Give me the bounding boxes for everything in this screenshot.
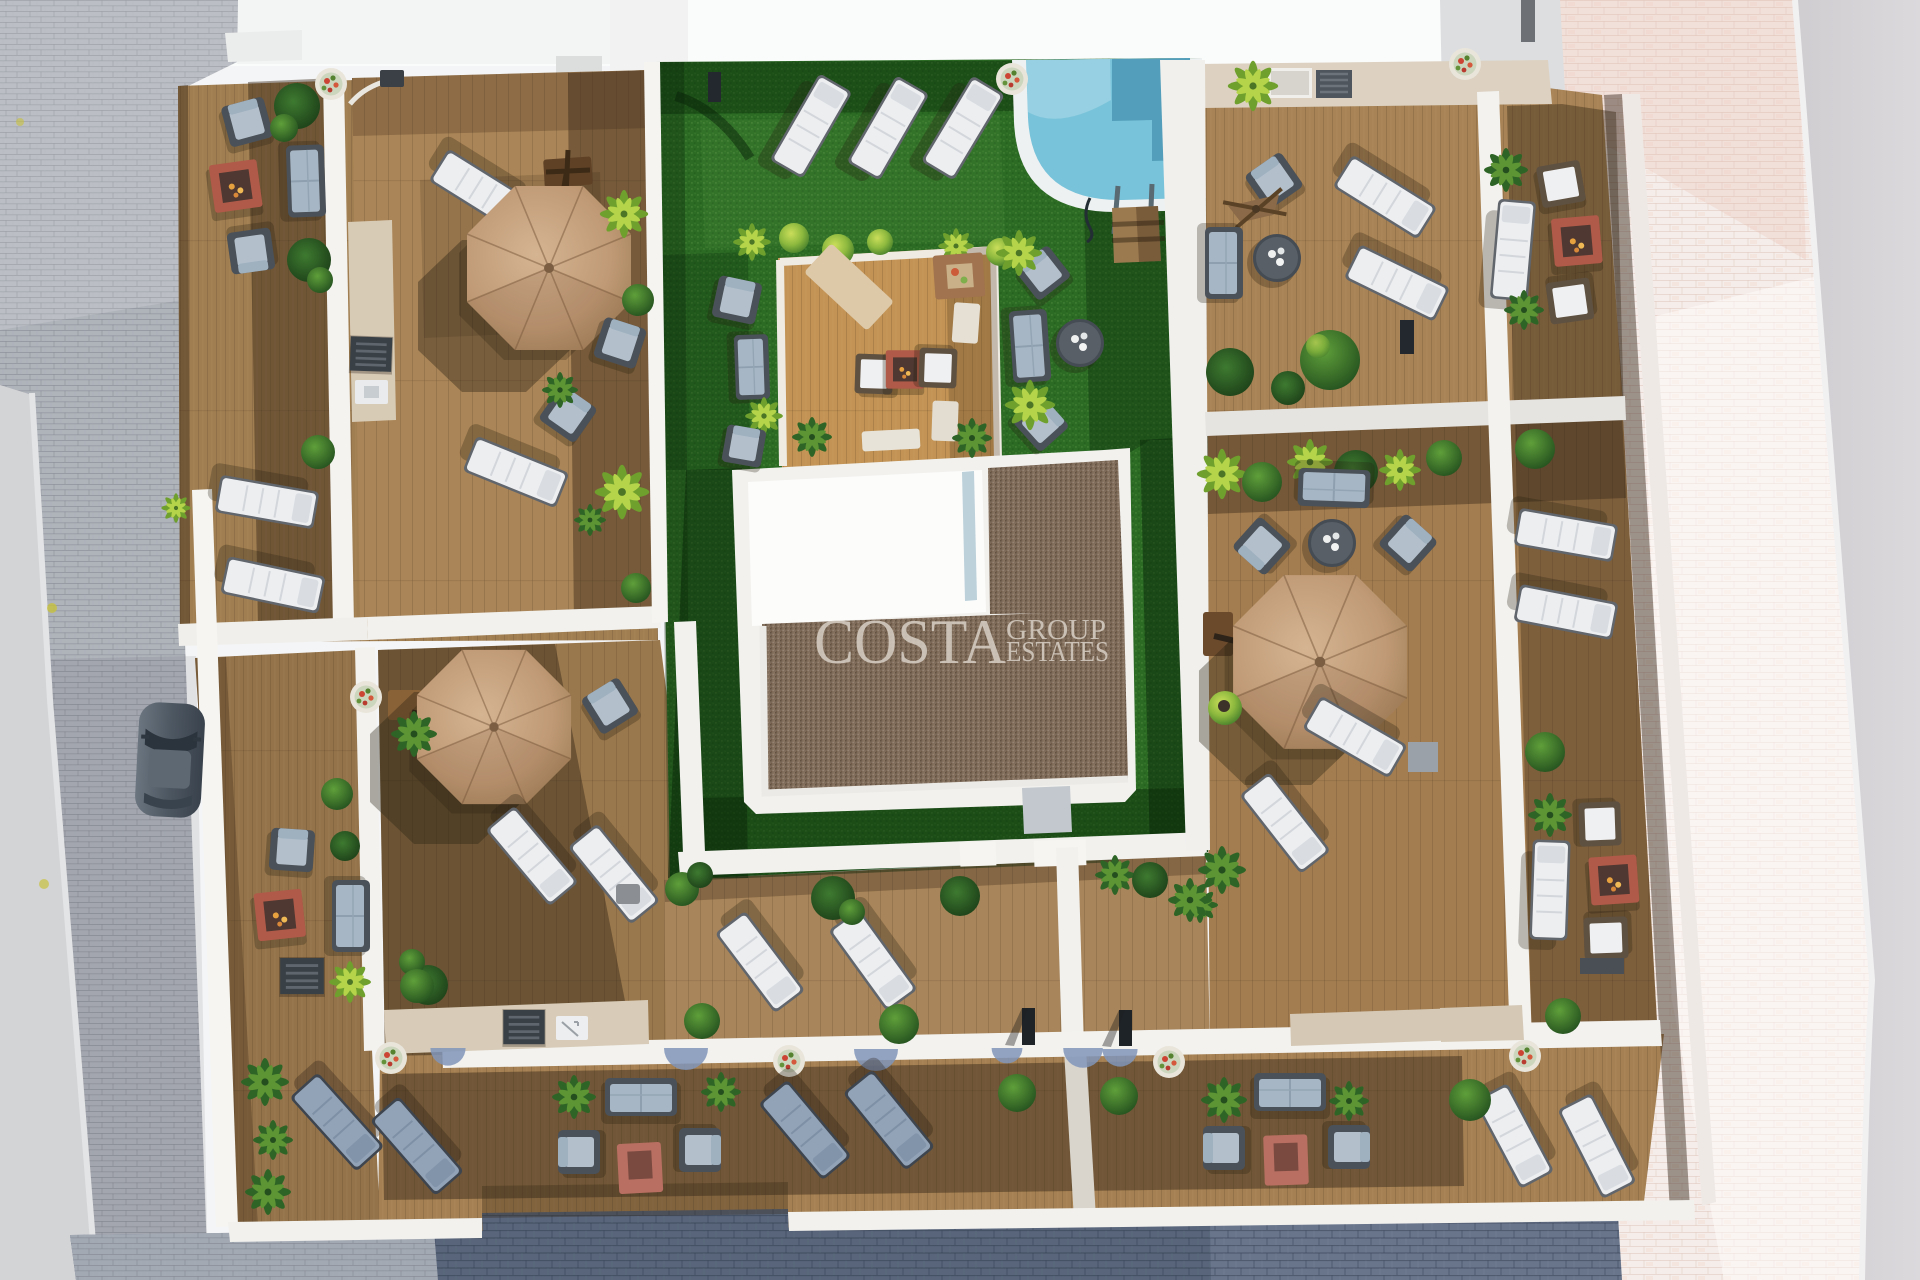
svg-text:ESTATES: ESTATES [1006,636,1109,668]
svg-text:COSTA: COSTA [814,607,1006,677]
